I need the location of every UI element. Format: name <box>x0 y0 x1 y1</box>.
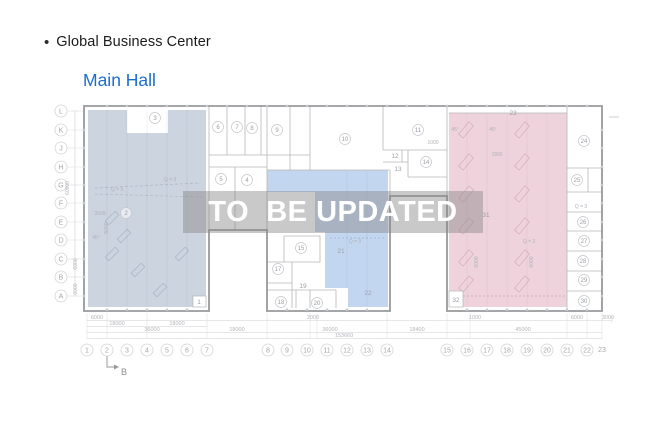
column-marker <box>601 166 603 168</box>
annotation-label: 6000 <box>529 256 535 267</box>
dimension-label: 153660 <box>335 333 353 339</box>
axis-number: 10 <box>303 347 311 354</box>
annotation-label: 45° <box>451 127 459 133</box>
dimension-label: 18000 <box>229 327 244 333</box>
column-marker <box>566 309 568 311</box>
column-marker <box>586 309 588 311</box>
axis-number: 7 <box>205 347 209 354</box>
axis-letter: J <box>59 145 63 152</box>
column-marker <box>306 105 308 107</box>
column-marker <box>83 295 85 297</box>
axis-number: 14 <box>383 347 391 354</box>
column-marker <box>126 309 128 311</box>
room-label: 19 <box>299 283 307 290</box>
column-marker <box>601 258 603 260</box>
column-marker <box>366 105 368 107</box>
column-marker <box>526 105 528 107</box>
column-marker <box>326 309 328 311</box>
column-marker <box>601 184 603 186</box>
column-marker <box>106 309 108 311</box>
axis-number: 13 <box>363 347 371 354</box>
room-label: 1 <box>197 299 201 306</box>
axis-number: 17 <box>483 347 491 354</box>
column-marker <box>601 147 603 149</box>
column-marker <box>601 221 603 223</box>
column-marker <box>146 105 148 107</box>
column-marker <box>83 129 85 131</box>
column-marker <box>586 105 588 107</box>
axis-number: 23 <box>598 347 606 354</box>
column-marker <box>601 295 603 297</box>
axis-letter: D <box>58 237 63 244</box>
room-label: 27 <box>581 239 588 245</box>
axis-number: 11 <box>323 347 330 354</box>
column-marker <box>346 309 348 311</box>
room-label: 13 <box>394 166 402 173</box>
axis-number: 19 <box>523 347 531 354</box>
annotation-label: 6000 <box>474 256 480 267</box>
column-marker <box>83 258 85 260</box>
room-label: 21 <box>337 248 345 255</box>
annotation-label: 45° <box>489 127 497 133</box>
column-marker <box>406 105 408 107</box>
column-marker <box>83 184 85 186</box>
column-marker <box>126 105 128 107</box>
column-marker <box>326 105 328 107</box>
axis-letter: L <box>59 108 63 115</box>
column-marker <box>206 105 208 107</box>
room-label: 20 <box>314 301 321 307</box>
room-label: 31 <box>482 212 490 219</box>
axis-number: 12 <box>343 347 351 354</box>
column-marker <box>83 166 85 168</box>
watermark-banner: TO BE UPDATED <box>183 191 483 233</box>
column-marker <box>186 309 188 311</box>
column-marker <box>83 276 85 278</box>
annotation-label: 6000 <box>73 258 79 269</box>
annotation-label: 6000 <box>73 283 79 294</box>
axis-letter: C <box>58 256 63 263</box>
room-label: 15 <box>298 246 305 252</box>
dimension-label: 1000 <box>469 315 481 321</box>
room-label: 25 <box>574 178 581 184</box>
column-marker <box>106 105 108 107</box>
page: • Global Business Center Main Hall <box>0 0 660 440</box>
dimension-label: 6000 <box>91 315 103 321</box>
column-marker <box>466 309 468 311</box>
axis-number: 6 <box>185 347 189 354</box>
room-label: 12 <box>391 153 399 160</box>
room-label: 30 <box>581 299 588 305</box>
room-label: 24 <box>581 139 588 145</box>
column-marker <box>286 105 288 107</box>
room-label: 28 <box>580 259 587 265</box>
annotation-label: 45° <box>92 235 100 241</box>
room-label: 18 <box>278 300 285 306</box>
room-label: 32 <box>452 297 460 304</box>
section-marker: B <box>107 354 127 377</box>
column-marker <box>486 105 488 107</box>
axis-number: 16 <box>463 347 471 354</box>
column-marker <box>166 105 168 107</box>
dimension-label: 6000 <box>571 315 583 321</box>
annotation-label: 5000 <box>104 222 110 233</box>
dimension-label: 36000 <box>144 327 159 333</box>
room-label: 26 <box>580 220 587 226</box>
column-marker <box>546 105 548 107</box>
column-marker <box>601 239 603 241</box>
axis-letter: E <box>59 219 64 226</box>
axis-number: 2 <box>105 347 109 354</box>
column-marker <box>526 309 528 311</box>
column-marker <box>506 105 508 107</box>
column-marker <box>566 105 568 107</box>
column-marker <box>266 105 268 107</box>
axis-number: 21 <box>563 347 571 354</box>
axis-number: 8 <box>266 347 270 354</box>
annotation-label: Q = 3 <box>575 204 588 210</box>
axis-number: 1 <box>85 347 89 354</box>
room-label: 10 <box>342 137 349 143</box>
axis-number: 22 <box>583 347 591 354</box>
column-marker <box>506 309 508 311</box>
axis-letter: G <box>58 182 63 189</box>
column-marker <box>226 105 228 107</box>
axis-number: 20 <box>543 347 551 354</box>
column-marker <box>306 309 308 311</box>
room-label: 22 <box>364 290 372 297</box>
annotation-label: Q = 3 <box>111 187 124 193</box>
dimension-labels: 6000200010006000300018000180003600018000… <box>91 315 614 339</box>
column-marker <box>83 239 85 241</box>
column-marker <box>83 147 85 149</box>
column-marker <box>366 309 368 311</box>
annotation-label: 1000 <box>427 140 438 146</box>
column-marker <box>286 309 288 311</box>
dimension-label: 3000 <box>602 315 614 321</box>
column-marker <box>186 105 188 107</box>
axis-letter: A <box>59 293 64 300</box>
axis-letter: H <box>58 164 63 171</box>
dimension-label: 45000 <box>515 327 530 333</box>
column-marker <box>166 309 168 311</box>
axis-letter: K <box>59 127 64 134</box>
room-label: 11 <box>415 128 422 134</box>
dimension-label: 18000 <box>109 321 124 327</box>
dimension-label: 18000 <box>169 321 184 327</box>
axis-number: 5 <box>165 347 169 354</box>
annotation-label: 60000 <box>65 181 71 195</box>
annotation-label: Q = 3 <box>349 239 362 245</box>
axis-letter: F <box>59 200 63 207</box>
annotation-label: 2600 <box>94 211 105 217</box>
column-marker <box>546 309 548 311</box>
column-marker <box>601 202 603 204</box>
axis-number: 18 <box>503 347 511 354</box>
column-marker <box>426 105 428 107</box>
column-marker <box>246 105 248 107</box>
column-marker <box>446 105 448 107</box>
axis-number: 4 <box>145 347 149 354</box>
axis-number: 3 <box>125 347 129 354</box>
annotation-label: Q = 3 <box>523 239 536 245</box>
annotation-label: Q = 3 <box>164 177 177 183</box>
room-label: 17 <box>275 267 282 273</box>
axis-numbers: 1234567891011121314151617181920212223 <box>81 344 606 356</box>
section-marker-label: B <box>121 367 127 377</box>
column-marker <box>601 129 603 131</box>
column-marker <box>146 309 148 311</box>
room-label: 23 <box>509 110 517 117</box>
room-label: 29 <box>581 278 588 284</box>
column-marker <box>601 276 603 278</box>
column-marker <box>386 105 388 107</box>
column-marker <box>346 105 348 107</box>
axis-number: 9 <box>285 347 289 354</box>
axis-letters: LKJHGFEDCBA <box>55 105 83 302</box>
column-marker <box>83 202 85 204</box>
room-label: 14 <box>423 160 430 166</box>
axis-number: 15 <box>443 347 451 354</box>
dimension-label: 2000 <box>307 315 319 321</box>
annotation-label: 1800 <box>491 152 502 158</box>
column-marker <box>486 309 488 311</box>
axis-letter: B <box>59 274 64 281</box>
dimension-label: 18400 <box>409 327 424 333</box>
column-marker <box>466 105 468 107</box>
column-marker <box>83 221 85 223</box>
